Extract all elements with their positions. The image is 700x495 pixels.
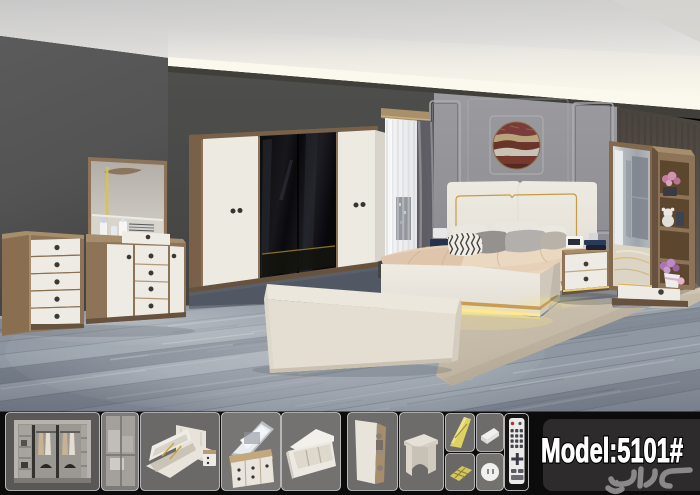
svg-text:Model:5101#: Model:5101# bbox=[541, 432, 683, 470]
